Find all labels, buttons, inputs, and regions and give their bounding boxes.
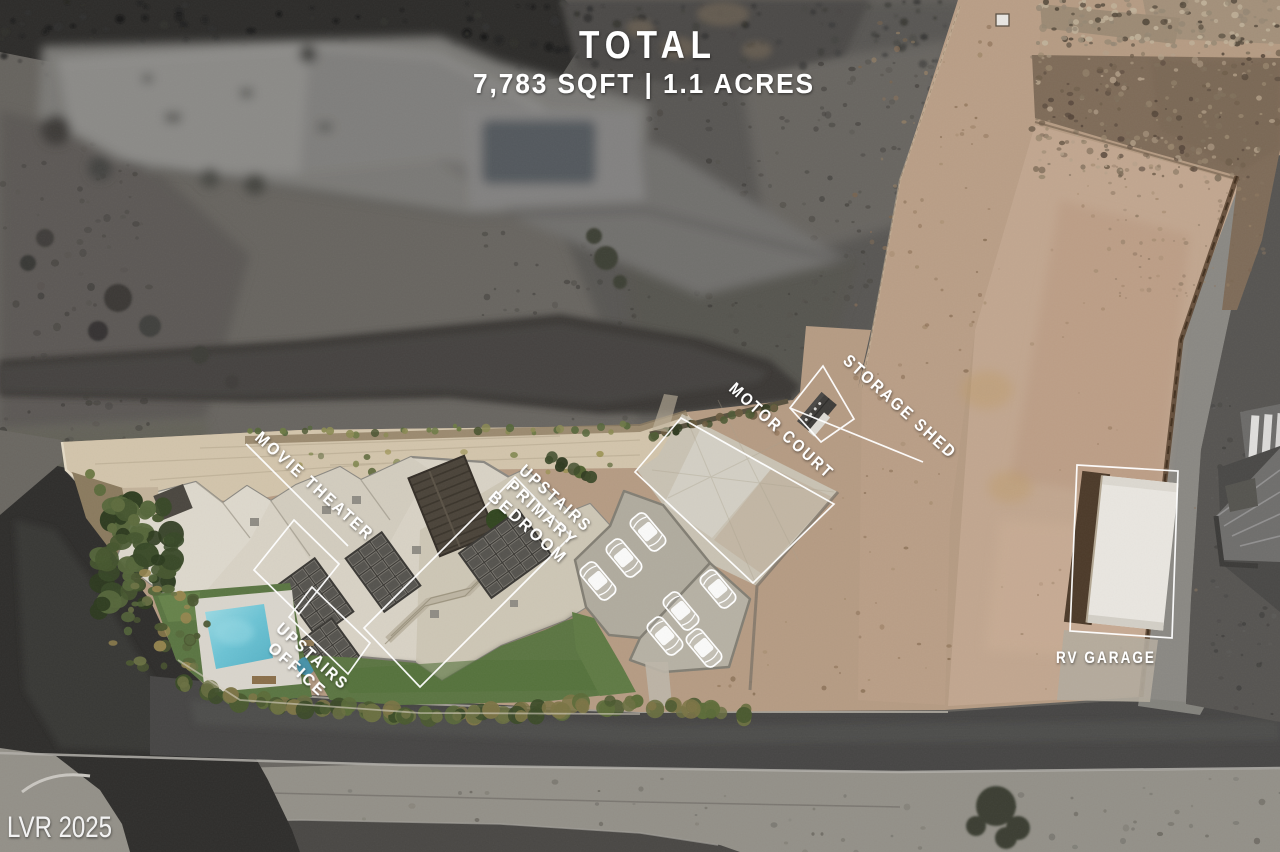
svg-text:7,783 SQFT | 1.1 ACRES: 7,783 SQFT | 1.1 ACRES (473, 68, 815, 99)
svg-text:LVR 2025: LVR 2025 (7, 811, 112, 844)
svg-text:RV GARAGE: RV GARAGE (1056, 648, 1156, 667)
svg-text:TOTAL: TOTAL (579, 24, 717, 67)
